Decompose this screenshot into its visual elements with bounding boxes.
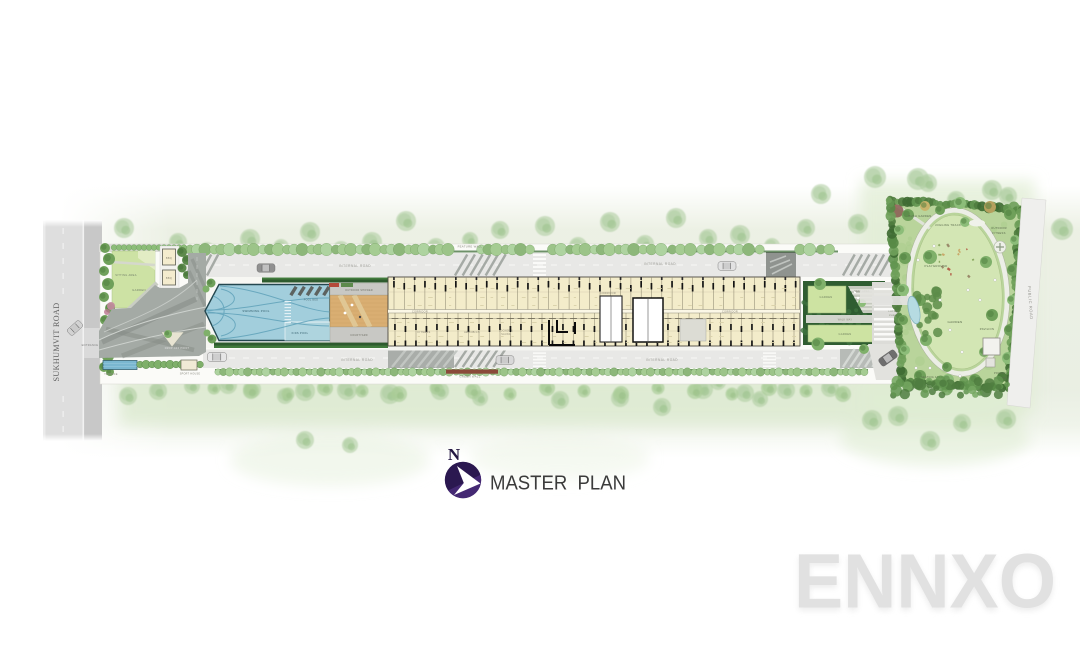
svg-text:POND: POND (889, 315, 897, 317)
svg-text:SPORT HOUSE: SPORT HOUSE (180, 373, 201, 376)
svg-text:BBQ: BBQ (166, 257, 172, 260)
svg-text:INTERNAL ROAD: INTERNAL ROAD (644, 262, 676, 266)
svg-text:BBQ: BBQ (166, 277, 172, 280)
svg-text:AEROBICS: AEROBICS (464, 330, 480, 334)
svg-text:FITNESS: FITNESS (992, 231, 1005, 235)
svg-text:MASTER PLAN: MASTER PLAN (490, 473, 626, 495)
svg-text:POOL BED: POOL BED (304, 299, 319, 302)
svg-text:OUTDOOR: OUTDOOR (991, 226, 1007, 230)
svg-text:BUSH GARDEN: BUSH GARDEN (908, 214, 931, 218)
svg-text:OUTDOOR SHOWER: OUTDOOR SHOWER (345, 289, 373, 292)
svg-text:CORRIDOR: CORRIDOR (600, 292, 616, 295)
svg-text:INTERNAL ROAD: INTERNAL ROAD (646, 358, 678, 362)
svg-text:INTERNAL ROAD: INTERNAL ROAD (341, 358, 373, 362)
svg-text:GARDEN: GARDEN (947, 320, 962, 324)
svg-text:LOCKER &: LOCKER & (499, 331, 513, 333)
svg-text:SAUNA: SAUNA (501, 333, 511, 336)
svg-text:ENTRANCE: ENTRANCE (82, 343, 99, 347)
svg-text:COURTYARD: COURTYARD (350, 334, 368, 337)
svg-text:LOTUS: LOTUS (889, 311, 898, 313)
svg-text:FITNESS: FITNESS (417, 330, 430, 334)
svg-text:CORRIDOR: CORRIDOR (412, 311, 428, 314)
svg-text:GARDEN: GARDEN (839, 332, 852, 336)
svg-text:WALK WAY: WALK WAY (838, 319, 853, 322)
svg-text:PLAYGROUND: PLAYGROUND (924, 264, 947, 268)
svg-text:JOGGING TRACK: JOGGING TRACK (935, 223, 961, 227)
svg-text:INTERNAL ROAD: INTERNAL ROAD (339, 264, 371, 268)
svg-text:ENNXO: ENNXO (794, 539, 1056, 625)
svg-text:CORRIDOR: CORRIDOR (722, 311, 738, 314)
svg-text:FEATURE WALL: FEATURE WALL (458, 245, 483, 249)
svg-text:POCKET: POCKET (994, 372, 1006, 375)
svg-text:TERRACE: TERRACE (104, 373, 118, 376)
svg-text:GREEN WALL: GREEN WALL (459, 375, 480, 379)
svg-text:KIDS POOL: KIDS POOL (292, 331, 309, 335)
svg-text:PAVILION: PAVILION (980, 327, 994, 331)
svg-text:GARDEN: GARDEN (132, 288, 146, 292)
svg-text:GARDEN: GARDEN (820, 295, 833, 299)
svg-text:SITTING AREA: SITTING AREA (115, 273, 136, 277)
svg-text:DROP OFF POINT: DROP OFF POINT (165, 347, 190, 350)
svg-text:SUKHUMVIT ROAD: SUKHUMVIT ROAD (52, 303, 61, 382)
svg-text:SWIMMING POOL: SWIMMING POOL (242, 309, 270, 313)
svg-text:N: N (448, 445, 461, 464)
